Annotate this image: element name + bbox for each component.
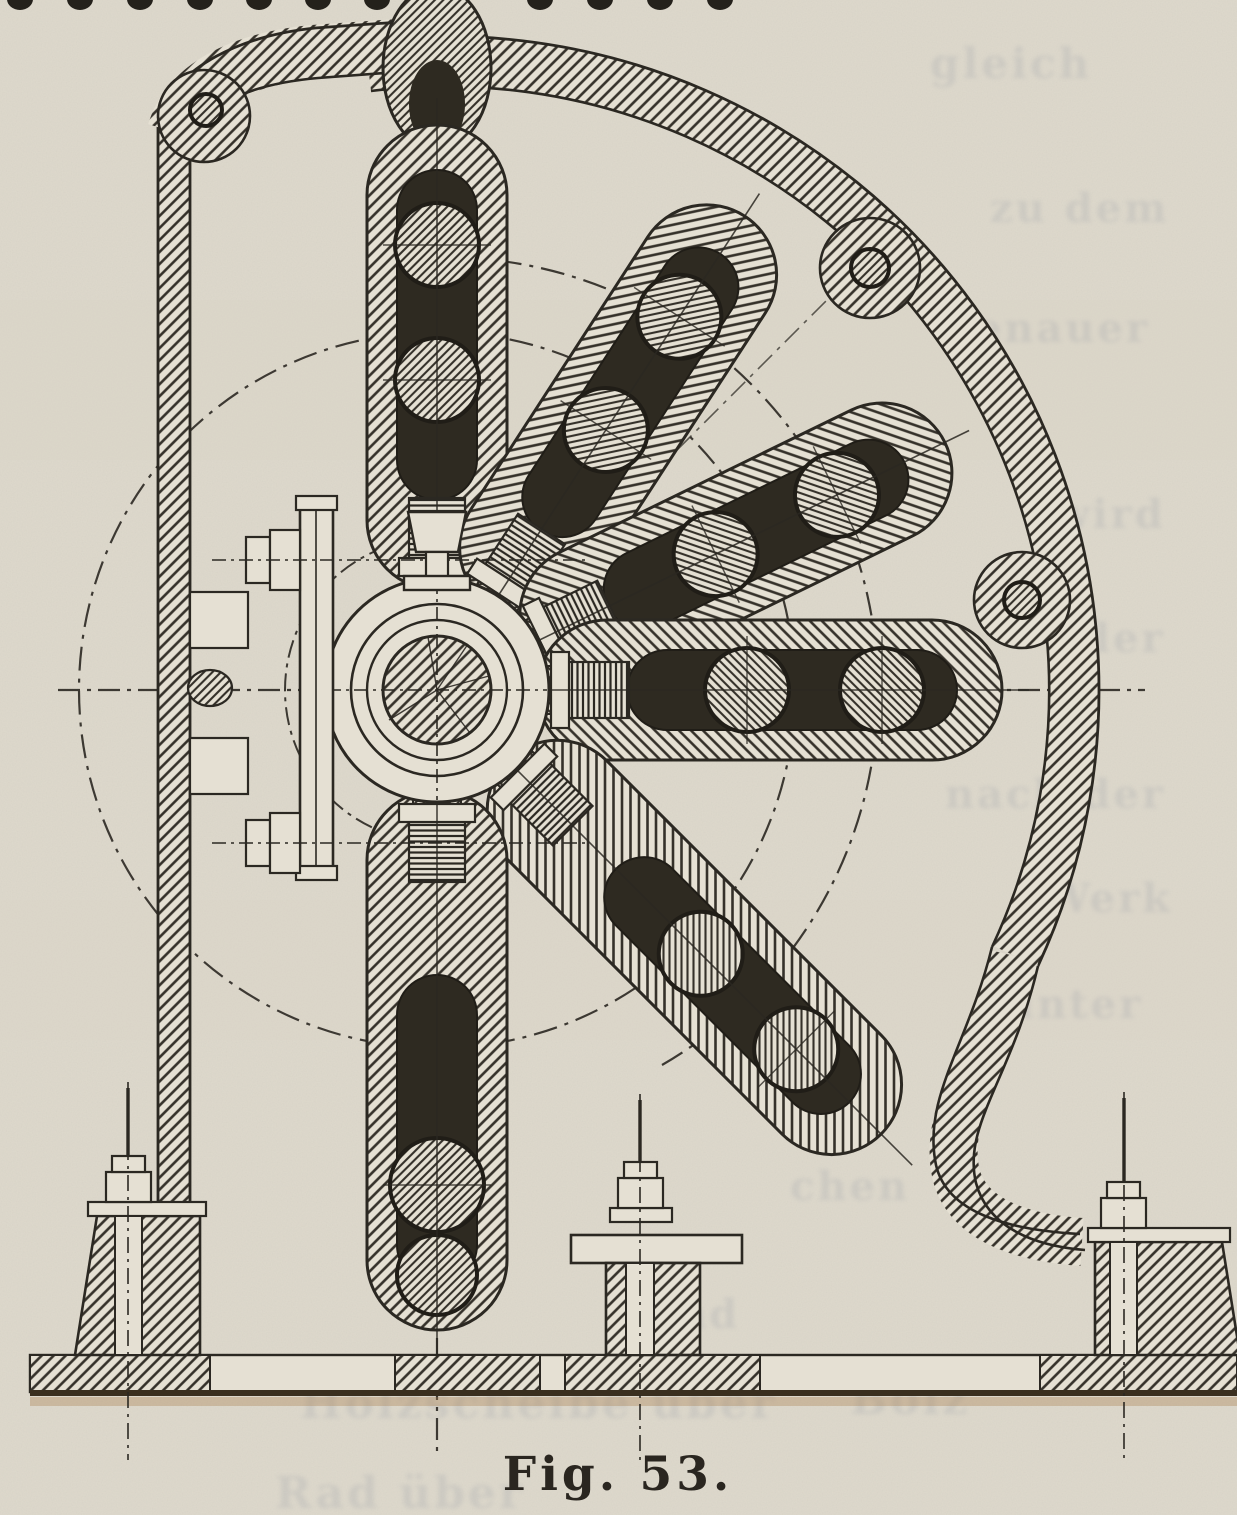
middle-foot-flange: [571, 1235, 742, 1263]
arm-6-oclock: [367, 750, 507, 1358]
ghost-fragment: zu dem: [990, 185, 1169, 232]
arm-3-oclock: [497, 620, 1029, 760]
base-plate-hatch: [1040, 1355, 1237, 1392]
wall-bracket-lower: [190, 738, 248, 794]
ghost-fragment: chen: [790, 1163, 910, 1210]
grease-cup-base: [404, 576, 470, 590]
base-shadow: [30, 1397, 1237, 1406]
middle-bolt-washer: [610, 1208, 672, 1222]
rim-lug-upper-hole: [851, 249, 889, 287]
grease-cup-stem: [426, 552, 448, 578]
scanned-page: gleich zu dem genauer wird der nach der …: [0, 0, 1237, 1515]
base-plate-hatch: [395, 1355, 540, 1392]
base-bottom-line: [30, 1390, 1237, 1396]
fig-53-technical-drawing: gleich zu dem genauer wird der nach der …: [0, 0, 1237, 1515]
wall-shaft-boss: [188, 670, 232, 706]
right-foot-washer: [1088, 1228, 1230, 1242]
middle-bolt-channel: [626, 1263, 654, 1355]
flange-cap-top: [296, 496, 337, 510]
left-wall: [158, 112, 190, 1234]
base-plate-hatch: [30, 1355, 210, 1392]
rim-lug-right-hole: [1004, 582, 1040, 618]
figure-caption: Fig. 53.: [503, 1447, 734, 1502]
ghost-fragment: gleich: [930, 39, 1092, 88]
left-foot-washer: [88, 1202, 206, 1216]
grease-cup-bowl: [408, 512, 466, 552]
ghost-fragment: Rad über: [275, 1468, 525, 1515]
flange-cap-bottom: [296, 866, 337, 880]
wall-top-lug-hole: [190, 94, 222, 126]
wall-bracket-upper: [190, 592, 248, 648]
base-plate-hatch: [565, 1355, 760, 1392]
